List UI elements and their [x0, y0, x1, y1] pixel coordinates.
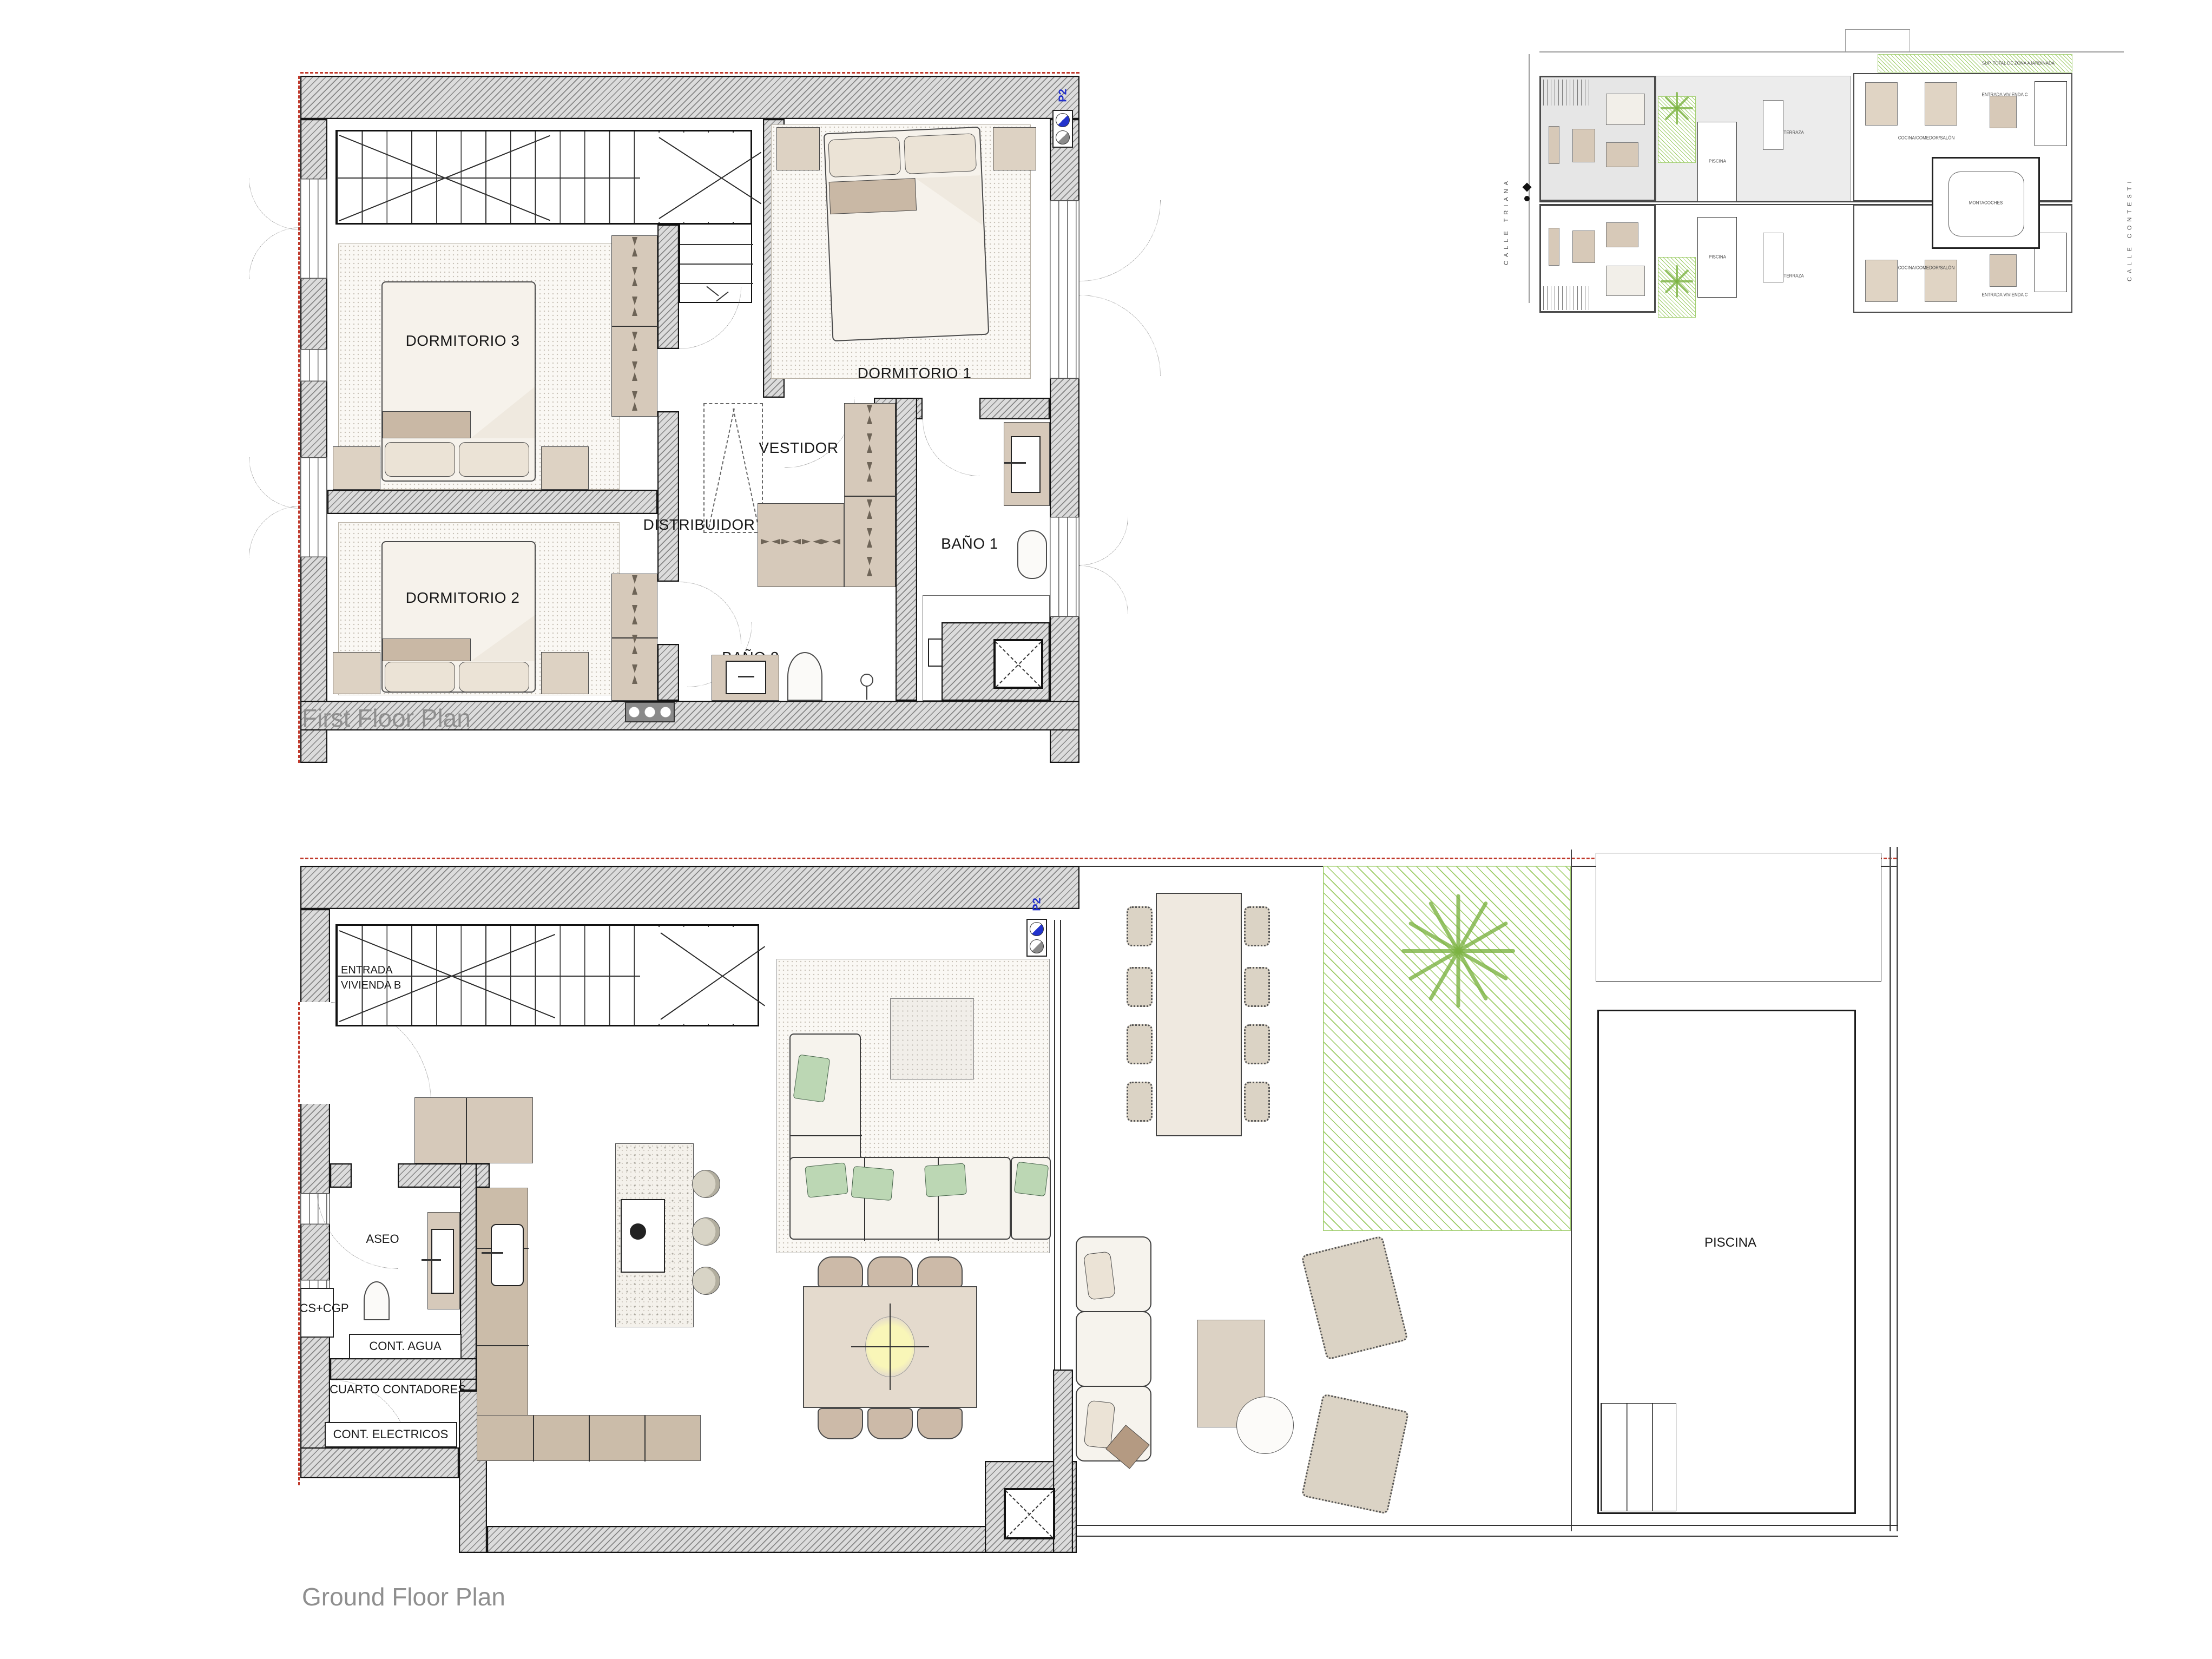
hanger-icon [631, 361, 638, 381]
kitchen-sink [491, 1224, 524, 1286]
ground-floor-caption: Ground Floor Plan [302, 1582, 505, 1611]
street-label: CALLE TRIANA [1503, 103, 1510, 265]
outdoor-armchair [1301, 1235, 1408, 1360]
window-swing-arc [1079, 200, 1161, 281]
dining-chair [917, 1256, 963, 1288]
vent-grille [625, 702, 675, 722]
level-marker-label: P2 [1057, 89, 1070, 102]
window [1050, 200, 1079, 379]
wall [657, 644, 679, 701]
mini-label: PISCINA [1709, 159, 1726, 164]
kitchen-counter [477, 1415, 701, 1461]
mini-outdoor-table [1763, 100, 1783, 150]
pool-deck [1596, 853, 1881, 982]
pillow [385, 442, 455, 477]
wall [896, 398, 917, 701]
window-swing-arc [249, 227, 300, 279]
outdoor-chair [1244, 967, 1270, 1007]
outdoor-chair [1127, 967, 1153, 1007]
site-boundary [1890, 847, 1891, 1531]
wall [657, 225, 679, 349]
hanger-icon [631, 297, 638, 316]
hanger-icon [631, 605, 638, 624]
faucet-stem [866, 686, 867, 700]
cooktop-burner [630, 1223, 646, 1240]
ground-floor-plan: ENTRADA VIVIENDA B P2 ASEO CS+CGP CONT. [300, 844, 1924, 1569]
side-table [1236, 1397, 1294, 1454]
wardrobe [758, 503, 844, 587]
dining-chair [917, 1408, 963, 1439]
room-label: DISTRIBUIDOR [643, 516, 755, 534]
stool [692, 1170, 720, 1198]
wall [460, 1163, 477, 1391]
dining-chair [818, 1256, 863, 1288]
pillow [385, 662, 455, 692]
door-arc [679, 287, 741, 349]
survey-marker-icon [1030, 939, 1044, 953]
unit-a-interior [1539, 76, 1656, 201]
wall [330, 1358, 477, 1380]
kitchen-island [615, 1143, 694, 1327]
room-label: BAÑO 1 [941, 535, 998, 552]
wall [300, 76, 1079, 119]
stool [692, 1217, 720, 1246]
mini-label: COCINA/COMEDOR/SALÓN [1898, 266, 1954, 271]
mini-label: COCINA/COMEDOR/SALÓN [1898, 136, 1954, 141]
hanger-icon [821, 538, 840, 545]
outdoor-chair [1127, 1024, 1153, 1064]
hanger-icon [631, 332, 638, 351]
pillow [1083, 1251, 1116, 1300]
washbasin-counter [427, 1212, 460, 1309]
window-swing-arc [1079, 295, 1161, 376]
hanger-icon [631, 237, 638, 256]
north-marker-icon [1523, 183, 1532, 192]
room-label: VESTIDOR [759, 439, 838, 457]
site-boundary [1897, 847, 1898, 1531]
outdoor-chair [1127, 1082, 1153, 1122]
pillow [851, 1166, 894, 1201]
street-line [1529, 54, 1530, 303]
floor-plan-sheet: DORMITORIO 3 DORMITORIO 2 [0, 0, 2212, 1659]
pouf [890, 998, 974, 1079]
hanger-icon [781, 538, 801, 545]
wall [979, 398, 1050, 419]
wall [327, 490, 657, 514]
property-line [298, 1002, 300, 1485]
mini-label: PISCINA [1709, 255, 1726, 260]
mini-label: TERRAZA [1783, 274, 1803, 279]
deck-boundary [1571, 850, 1572, 1531]
window-swing-arc [249, 506, 300, 557]
outdoor-chair [1244, 906, 1270, 946]
mini-label: MONTACOCHES [1969, 201, 2003, 206]
hanger-icon [631, 267, 638, 286]
hanger-icon [631, 575, 638, 595]
wall [300, 1447, 459, 1478]
roof-outline [1845, 29, 1910, 52]
pillow [805, 1162, 848, 1198]
pillow [793, 1054, 831, 1102]
window-swing-arc [1079, 565, 1128, 614]
staircase [335, 924, 759, 1026]
survey-marker-icon [1030, 922, 1044, 936]
pillow [459, 662, 529, 692]
toilet [1017, 530, 1047, 579]
site-boundary [1077, 1536, 1898, 1537]
hanger-icon [802, 538, 821, 545]
pillow [459, 442, 529, 477]
site-overview-plan: CALLE TRIANA PISCINA TERRAZA [1499, 22, 2148, 325]
mini-label: TERRAZA [1783, 130, 1803, 135]
site-line [1539, 51, 2124, 52]
door-arc [923, 419, 979, 476]
hanger-icon [866, 528, 873, 548]
nightstand [541, 446, 589, 490]
stair-landing-line [337, 177, 640, 179]
outdoor-chair [1244, 1024, 1270, 1064]
dining-chair [818, 1408, 863, 1439]
room-label: ENTRADA [341, 964, 393, 977]
bed-blanket [383, 411, 471, 438]
site-boundary [1077, 1525, 1898, 1526]
wall [330, 1163, 352, 1188]
hanger-icon [631, 391, 638, 411]
wardrobe [611, 235, 657, 417]
mini-pool [2035, 81, 2067, 146]
bed [824, 127, 990, 341]
elevator [993, 639, 1043, 689]
pendant-cross [890, 1304, 891, 1390]
mini-outdoor-table [1763, 233, 1783, 282]
hanger-icon [866, 557, 873, 576]
hanger-icon [866, 462, 873, 482]
hanger-icon [761, 538, 780, 545]
window-swing-arc [249, 179, 300, 230]
mini-label: ENTRADA VIVIENDA C [1982, 93, 2028, 97]
nightstand [776, 127, 820, 170]
room-label: CONT. ELECTRICOS [333, 1427, 449, 1441]
unit-b-interior [1539, 205, 1656, 313]
staircase [335, 130, 752, 225]
north-marker-icon [1524, 196, 1530, 201]
room-label: VIVIENDA B [341, 979, 401, 992]
mini-label: ENTRADA VIVIENDA C [1982, 293, 2028, 298]
outdoor-chair [1244, 1082, 1270, 1122]
pillow [904, 133, 977, 174]
outdoor-sofa [1076, 1311, 1151, 1387]
pillow [828, 136, 901, 177]
faucet-icon [860, 674, 873, 687]
wall [300, 909, 330, 1458]
window-swing-arc [249, 457, 300, 509]
window-swing-arc [1079, 517, 1128, 565]
washbasin-counter [1004, 422, 1050, 506]
bed-blanket [829, 178, 917, 214]
room-label: ASEO [366, 1232, 399, 1246]
wall [300, 866, 1079, 909]
bed-fold [916, 175, 983, 228]
street-label: CALLE CONTESTI [2127, 108, 2133, 281]
washbasin-counter [712, 655, 779, 701]
hanger-icon [631, 635, 638, 654]
faucet-icon [482, 1252, 503, 1254]
mini-label: SUP. TOTAL DE ZONA AJARDINADA [1982, 61, 2055, 66]
wall [657, 411, 679, 582]
room-label: DORMITORIO 2 [406, 589, 520, 607]
hanger-icon [866, 405, 873, 424]
kitchen-cabinet [414, 1097, 533, 1163]
hanger-icon [866, 499, 873, 519]
dining-chair [867, 1408, 913, 1439]
garden [1323, 866, 1571, 1231]
nightstand [333, 446, 380, 490]
window [1050, 517, 1079, 617]
hanger-icon [631, 664, 638, 684]
kitchen-counter [477, 1188, 528, 1423]
room-label: CS+CGP [299, 1301, 348, 1315]
bed-blanket [383, 638, 471, 661]
outdoor-armchair [1301, 1393, 1410, 1515]
pillow [1014, 1162, 1049, 1197]
pillow [1084, 1400, 1116, 1449]
pillow [924, 1163, 967, 1197]
property-line [300, 72, 1079, 74]
skylight-void [703, 403, 763, 533]
window [300, 179, 327, 279]
window [300, 349, 327, 381]
stair-diagonal [339, 934, 555, 1022]
outdoor-chair [1127, 906, 1153, 946]
nightstand [541, 652, 589, 694]
pool [1597, 1010, 1856, 1514]
dining-chair [867, 1256, 913, 1288]
pool-steps [1601, 1403, 1676, 1511]
stool [692, 1267, 720, 1295]
room-label: PISCINA [1704, 1235, 1756, 1250]
room-label: DORMITORIO 1 [858, 365, 972, 382]
survey-marker-icon [1056, 130, 1070, 144]
outdoor-table [1156, 893, 1242, 1136]
room-label: CONT. AGUA [369, 1339, 441, 1353]
elevator [1004, 1488, 1055, 1539]
level-marker-label: P2 [1031, 898, 1044, 911]
nightstand [333, 652, 380, 694]
survey-marker-icon [1056, 113, 1070, 127]
wall [1053, 1370, 1073, 1553]
toilet [787, 652, 822, 701]
room-label: DORMITORIO 3 [406, 332, 520, 350]
toilet [364, 1281, 390, 1320]
nightstand [993, 127, 1036, 170]
first-floor-caption: First Floor Plan [302, 703, 471, 733]
window [300, 457, 327, 557]
hanger-icon [866, 433, 873, 453]
